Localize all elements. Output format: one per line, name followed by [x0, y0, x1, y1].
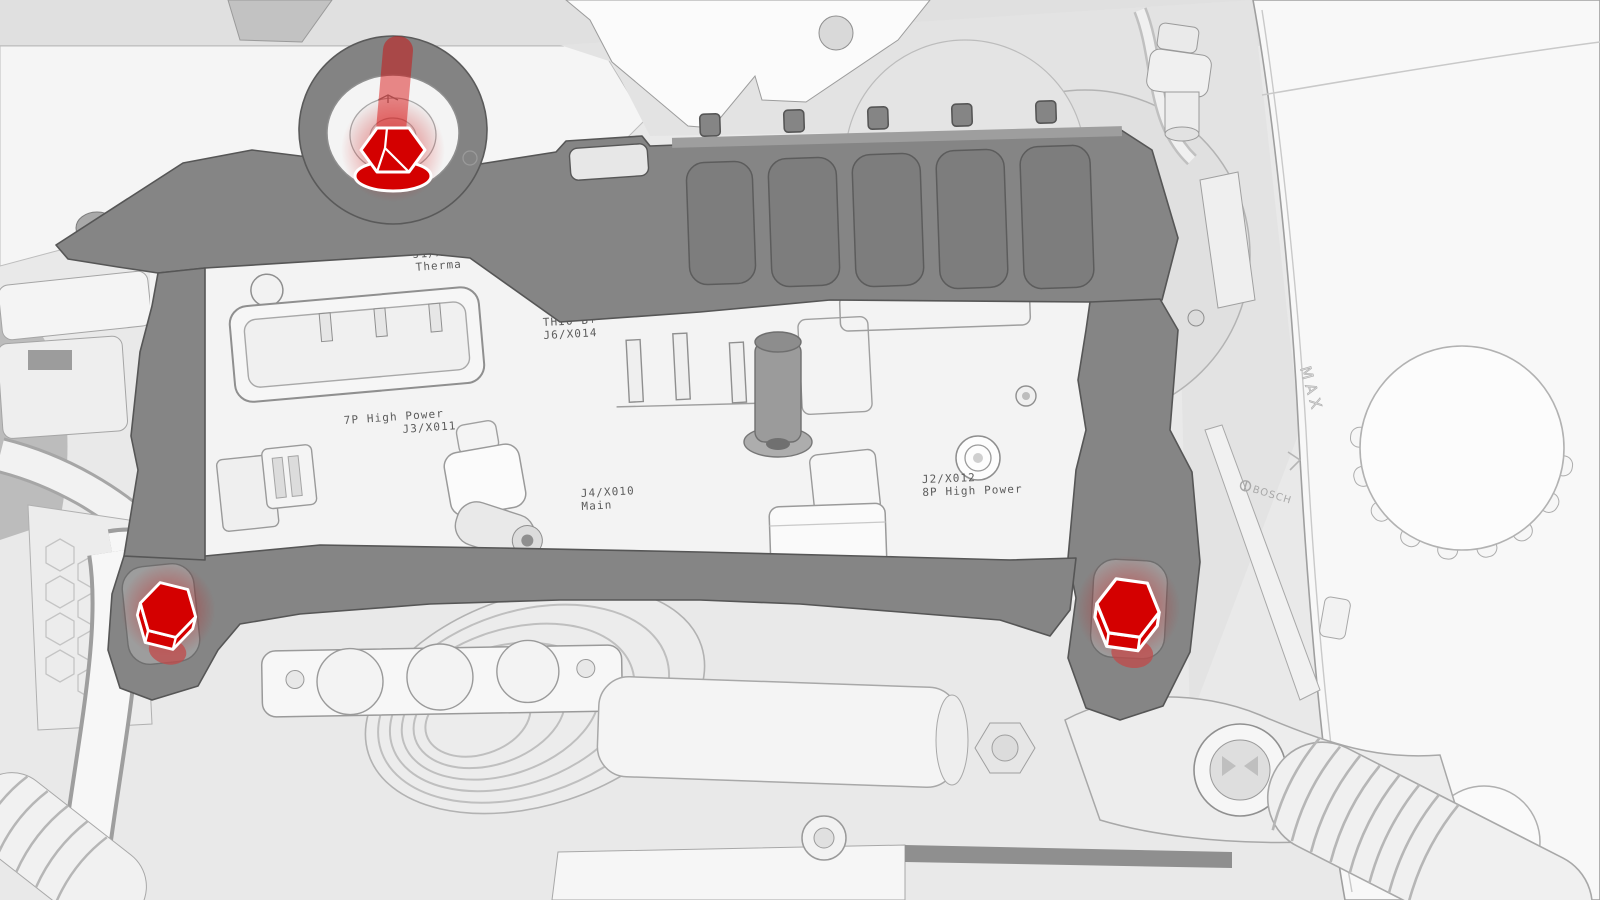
rib-tab: [700, 114, 721, 137]
highlighted-bolt-top: [341, 98, 445, 202]
small-hole-center: [1022, 392, 1030, 400]
rib-recess: [852, 153, 925, 287]
rail-slot: [569, 143, 649, 180]
rib-tab: [952, 104, 973, 127]
panel-grommet-hole: [814, 828, 834, 848]
lower-white-panel: [552, 845, 905, 900]
rib-tab: [1036, 101, 1057, 124]
rib-recess: [768, 157, 840, 287]
label-main-line2: Main: [581, 498, 613, 513]
rib-recess: [1020, 145, 1095, 289]
rib-tab: [868, 107, 889, 130]
rib-recess: [686, 161, 756, 285]
rib-recess: [936, 149, 1009, 289]
bracket-hole: [819, 16, 853, 50]
screw-head: [1188, 310, 1204, 326]
crossmember-plate: [261, 639, 622, 717]
engine-bay-illustration: MAX BOS: [0, 0, 1600, 900]
connector-slot: [28, 350, 72, 370]
illustration-canvas: MAX BOS: [0, 0, 1600, 900]
rib-tab: [784, 110, 805, 133]
